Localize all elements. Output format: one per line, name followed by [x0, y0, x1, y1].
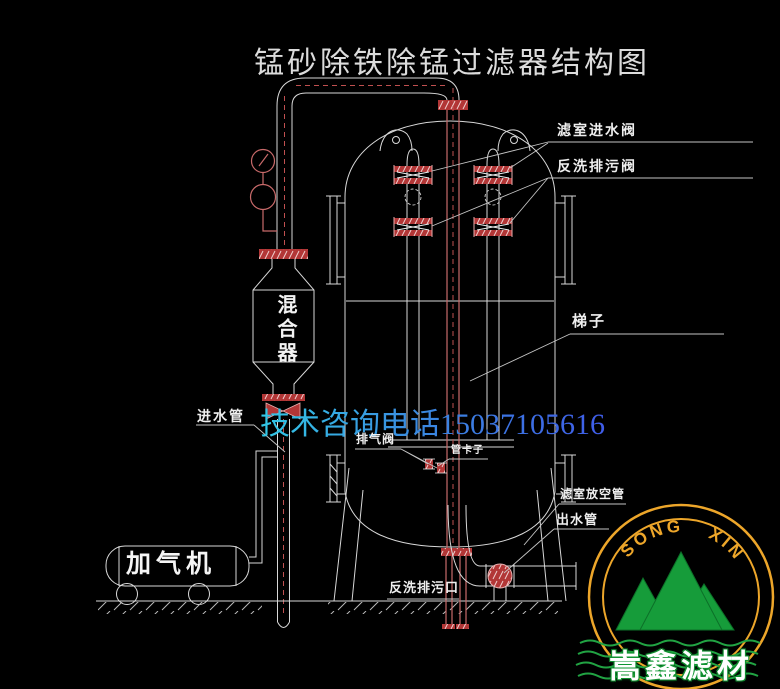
outlet-valve-icon: [488, 564, 512, 588]
aerator-air-line: [249, 451, 277, 563]
label-mixer: 混合器: [271, 294, 300, 366]
tank-internals: [346, 88, 554, 548]
ground: [96, 601, 562, 614]
right-upper-nozzle: [555, 196, 576, 284]
label-inlet-pipe: 进水管: [197, 409, 245, 424]
central-riser-pipe: [447, 110, 459, 548]
bottom-tee-fitting: [441, 548, 472, 556]
label-outlet-pipe: 出水管: [556, 513, 598, 527]
page-title: 锰砂除铁除锰过滤器结构图: [254, 38, 654, 82]
label-aerator: 加气机: [126, 551, 216, 579]
watermark-phone-text: 技术咨询电话15037105616: [260, 399, 605, 443]
filter-inlet-valve-icon: [474, 165, 512, 185]
pressure-gauge: [251, 150, 278, 232]
label-backwash-drain-outlet: 反洗排污口: [389, 581, 459, 595]
mixer-top-flange: [259, 249, 308, 259]
left-upper-nozzle: [326, 196, 345, 284]
label-pipe-clamp: 管卡子: [451, 445, 484, 456]
mountain-icon: [640, 552, 722, 630]
diagram-canvas: SONG XIN 锰砂除铁除锰过滤器结构图 技术咨询电话15037105616 …: [0, 0, 780, 689]
filter-inlet-valve-icon: [394, 165, 432, 185]
label-ladder: 梯子: [572, 314, 606, 331]
label-backwash-drain-valve: 反洗排污阀: [557, 159, 637, 174]
ground-hatching: [98, 602, 262, 614]
logo-company-name: 嵩鑫滤材: [600, 641, 762, 687]
label-exhaust-valve: 排气阀: [356, 433, 395, 446]
label-filter-inlet-valve: 滤室进水阀: [557, 123, 637, 138]
backwash-valve-icon: [394, 217, 432, 237]
backwash-valve-icon: [474, 217, 512, 237]
gauge-valve-icon: [251, 185, 276, 210]
internal-pipe-right: [487, 149, 499, 440]
filter-tank-shell: [326, 121, 576, 601]
leader-lines: [254, 142, 570, 573]
lifting-lug-icon: [380, 130, 412, 151]
left-pipe-assembly: [277, 78, 468, 250]
label-vent-pipe: 滤室放空管: [560, 488, 625, 501]
ground-hatching: [328, 602, 558, 614]
internal-pipe-left: [407, 149, 419, 440]
